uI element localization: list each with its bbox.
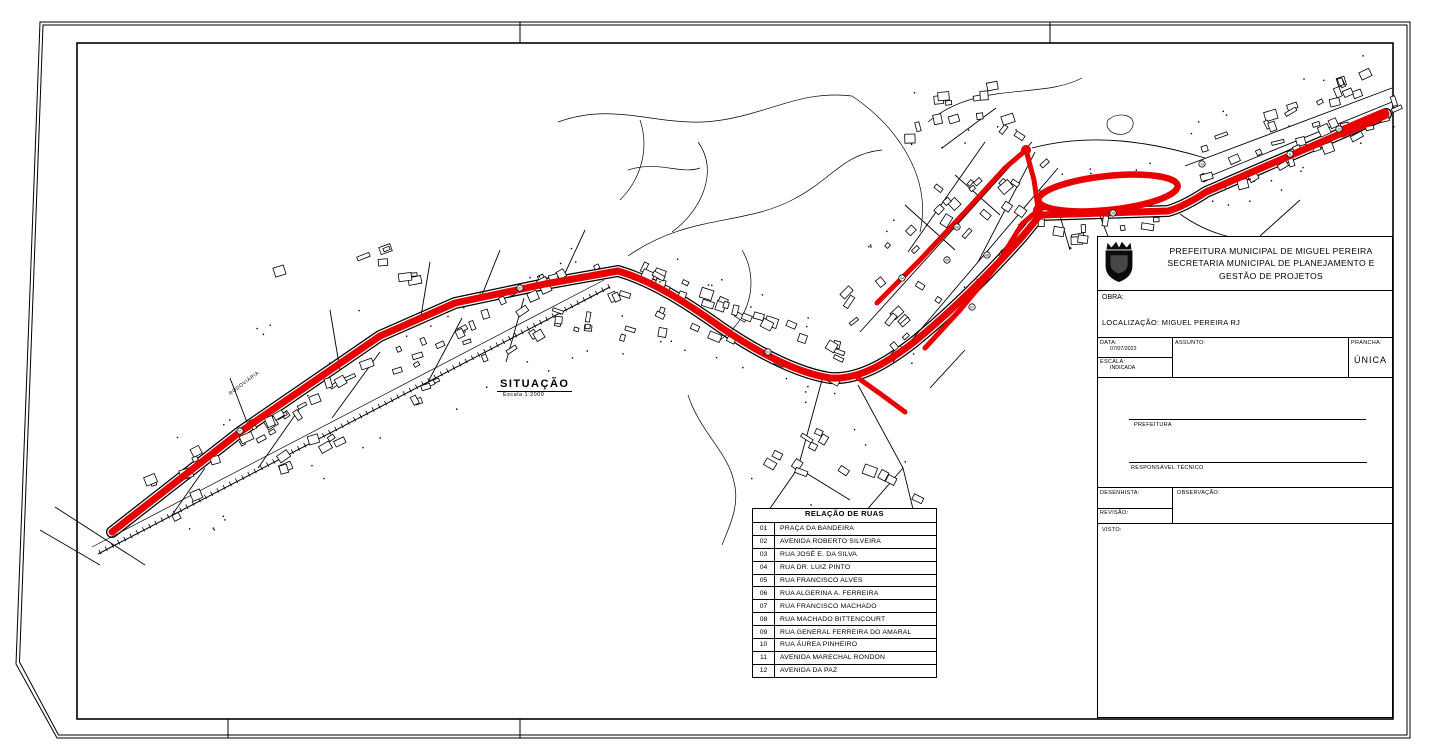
route-marker-number: 07 (970, 305, 974, 309)
street-row: 09RUA GENERAL FERREIRA DO AMARAL (753, 626, 936, 639)
street-name: RUA FRANCISCO MACHADO (775, 603, 936, 610)
title-block: PREFEITURA MUNICIPAL DE MIGUEL PEREIRA S… (1097, 236, 1393, 718)
street-number: 02 (753, 536, 775, 548)
route-marker-number: 02 (518, 286, 522, 290)
obra-section: OBRA: LOCALIZAÇÃO: MIGUEL PEREIRA RJ (1098, 291, 1392, 338)
street-name: PRAÇA DA BANDEIRA (775, 525, 936, 532)
streets-table-title: RELAÇÃO DE RUAS (753, 509, 936, 523)
street-number: 03 (753, 549, 775, 561)
street-number: 07 (753, 600, 775, 612)
street-name: AVENIDA DA PAZ (775, 667, 936, 674)
street-row: 05RUA FRANCISCO ALVES (753, 575, 936, 588)
data-cell: DATA: 07/07/2022 (1098, 338, 1172, 358)
revisao-cell: REVISÃO: (1098, 508, 1172, 523)
street-name: RUA MACHADO BITTENCOURT (775, 616, 936, 623)
street-name: RUA JOSÉ E. DA SILVA (775, 551, 936, 558)
desenhista-label: DESENHISTA: (1100, 490, 1140, 496)
street-row: 08RUA MACHADO BITTENCOURT (753, 613, 936, 626)
data-escala-cell: DATA: 07/07/2022 ESCALA: INDICADA (1098, 338, 1173, 377)
street-row: 01PRAÇA DA BANDEIRA (753, 523, 936, 536)
street-name: RUA GENERAL FERREIRA DO AMARAL (775, 629, 936, 636)
situacao-title: SITUAÇÃO (497, 378, 572, 392)
revisao-label: REVISÃO: (1100, 510, 1128, 516)
escala-value: INDICADA (1110, 365, 1135, 371)
street-name: RUA FRANCISCO ALVES (775, 577, 936, 584)
route-marker-number: 08 (985, 253, 989, 257)
prancha-value: ÚNICA (1349, 355, 1392, 365)
route-marker-number: 03 (766, 350, 770, 354)
org-line-1: PREFEITURA MUNICIPAL DE MIGUEL PEREIRA (1156, 245, 1386, 258)
route-marker-number: 01 (238, 429, 242, 433)
visto-section: VISTO: (1098, 524, 1392, 719)
resp-tecnico-label: RESPONSÁVEL TÉCNICO (1131, 465, 1204, 471)
resp-tecnico-signature-line (1129, 462, 1367, 463)
desenhista-cell: DESENHISTA: (1098, 488, 1172, 509)
assunto-cell: ASSUNTO: (1173, 338, 1349, 377)
street-number: 11 (753, 652, 775, 664)
prancha-label: PRANCHA: (1351, 340, 1382, 346)
data-value: 07/07/2022 (1110, 346, 1137, 352)
route-marker-number: 11 (1288, 152, 1292, 156)
observacao-label: OBSERVAÇÃO: (1177, 490, 1220, 496)
plan-sheet: 010203040506070809101112 SITUAÇÃO Escala… (0, 0, 1432, 755)
street-name: AVENIDA MARECHAL RONDON (775, 654, 936, 661)
desenhista-section: DESENHISTA: REVISÃO: OBSERVAÇÃO: (1098, 488, 1392, 524)
route-marker-number: 10 (1200, 162, 1204, 166)
situacao-scale-label: Escala 1:2000 (503, 392, 544, 398)
street-row: 10RUA ÁUREA PINHEIRO (753, 639, 936, 652)
prefeitura-signature-line (1129, 419, 1366, 420)
org-line-2: SECRETARIA MUNICIPAL DE PLANEJAMENTO E (1156, 257, 1386, 270)
localizacao-value: LOCALIZAÇÃO: MIGUEL PEREIRA RJ (1102, 318, 1240, 327)
escala-cell: ESCALA: INDICADA (1098, 357, 1172, 377)
municipal-crest-logo (1098, 237, 1156, 290)
street-row: 11AVENIDA MARECHAL RONDON (753, 652, 936, 665)
street-row: 12AVENIDA DA PAZ (753, 665, 936, 677)
street-row: 06RUA ALGERINA A. FERREIRA (753, 587, 936, 600)
street-row: 04RUA DR. LUIZ PINTO (753, 562, 936, 575)
visto-label: VISTO: (1102, 527, 1122, 533)
assunto-label: ASSUNTO: (1175, 340, 1205, 346)
street-number: 01 (753, 523, 775, 535)
street-row: 07RUA FRANCISCO MACHADO (753, 600, 936, 613)
street-number: 04 (753, 562, 775, 574)
street-name: AVENIDA ROBERTO SILVEIRA (775, 538, 936, 545)
route-marker-number: 12 (1337, 127, 1341, 131)
street-number: 08 (753, 613, 775, 625)
title-block-header: PREFEITURA MUNICIPAL DE MIGUEL PEREIRA S… (1098, 237, 1392, 291)
street-number: 12 (753, 665, 775, 677)
prefeitura-label: PREFEITURA (1134, 422, 1172, 428)
organization-name: PREFEITURA MUNICIPAL DE MIGUEL PEREIRA S… (1156, 237, 1392, 290)
street-number: 10 (753, 639, 775, 651)
street-number: 09 (753, 626, 775, 638)
route-marker-number: 05 (945, 258, 949, 262)
street-name: RUA DR. LUIZ PINTO (775, 564, 936, 571)
prancha-cell: PRANCHA: ÚNICA (1349, 338, 1392, 377)
street-row: 03RUA JOSÉ E. DA SILVA (753, 549, 936, 562)
street-number: 06 (753, 587, 775, 599)
signatures-section: PREFEITURA RESPONSÁVEL TÉCNICO (1098, 378, 1392, 488)
streets-table-body: 01PRAÇA DA BANDEIRA02AVENIDA ROBERTO SIL… (753, 523, 936, 677)
street-number: 05 (753, 575, 775, 587)
meta-row: DATA: 07/07/2022 ESCALA: INDICADA ASSUNT… (1098, 338, 1392, 378)
street-row: 02AVENIDA ROBERTO SILVEIRA (753, 536, 936, 549)
streets-legend-table: RELAÇÃO DE RUAS 01PRAÇA DA BANDEIRA02AVE… (752, 508, 937, 678)
desenhista-revisao-cells: DESENHISTA: REVISÃO: (1098, 488, 1173, 523)
route-marker-number: 04 (900, 276, 904, 280)
org-line-3: GESTÃO DE PROJETOS (1156, 270, 1386, 283)
route-marker-number: 09 (1111, 211, 1115, 215)
obra-label: OBRA: (1102, 294, 1124, 301)
street-name: RUA ÁUREA PINHEIRO (775, 641, 936, 648)
route-marker-number: 06 (955, 225, 959, 229)
street-name: RUA ALGERINA A. FERREIRA (775, 590, 936, 597)
